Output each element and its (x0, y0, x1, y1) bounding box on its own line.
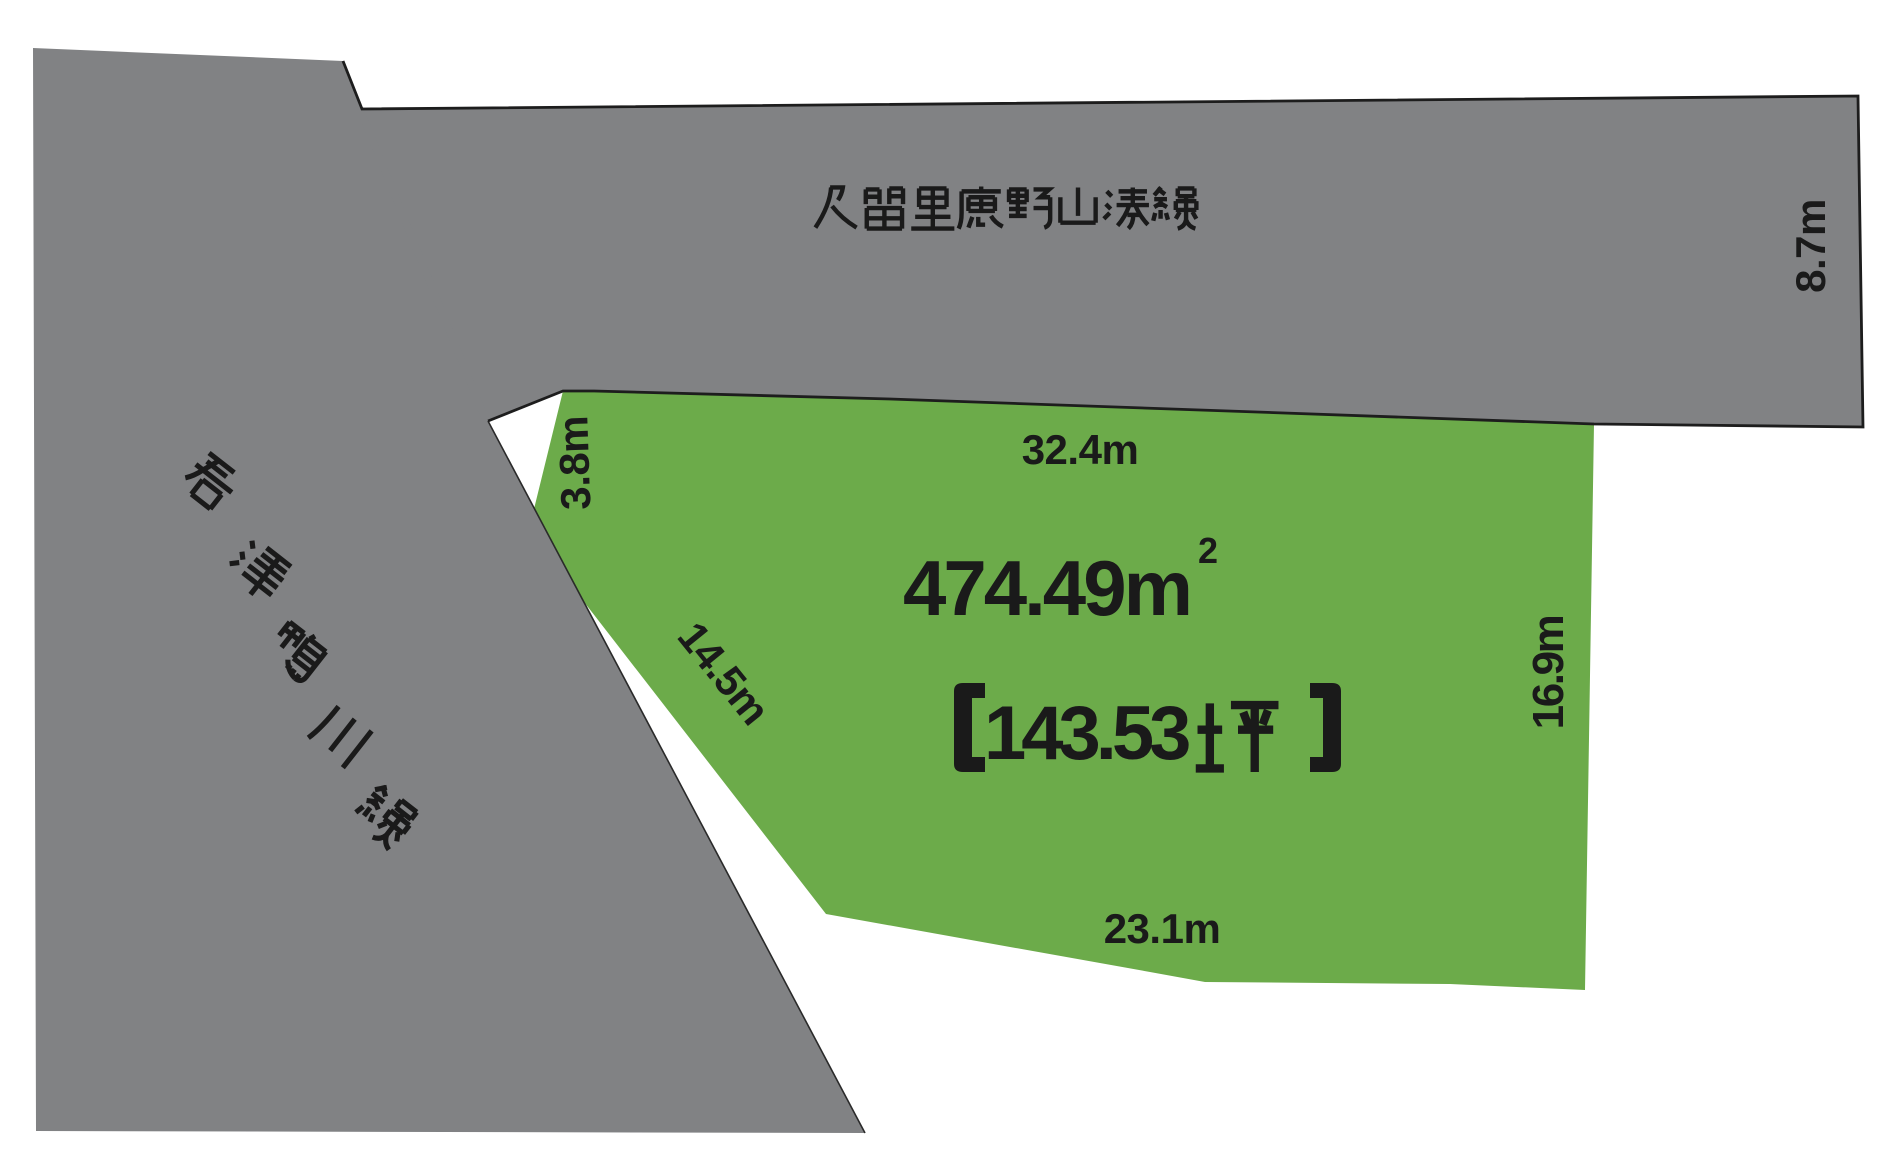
svg-text:2: 2 (1198, 530, 1218, 571)
svg-text:143.53: 143.53 (984, 691, 1189, 776)
svg-text:16.9m: 16.9m (1524, 616, 1573, 729)
svg-text:474.49m: 474.49m (903, 544, 1190, 632)
svg-text:32.4m: 32.4m (1022, 426, 1139, 473)
svg-text:23.1m: 23.1m (1104, 905, 1221, 952)
svg-text:3.8m: 3.8m (549, 415, 599, 510)
svg-text:8.7m: 8.7m (1787, 199, 1834, 293)
